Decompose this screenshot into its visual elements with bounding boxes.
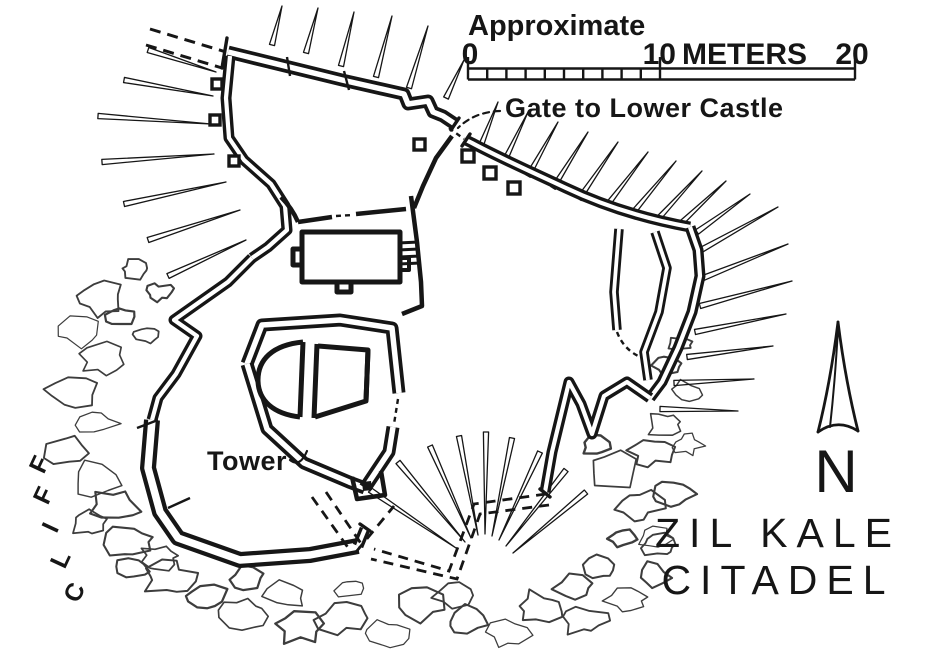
buttress-square bbox=[212, 79, 222, 89]
north-letter: N bbox=[814, 438, 857, 505]
tower-label: Tower bbox=[207, 446, 287, 476]
scale-bar: Approximate 0 10 METERS 20 bbox=[462, 10, 869, 80]
buttress-square bbox=[210, 115, 220, 125]
map-title: ZIL KALE CITADEL bbox=[655, 510, 901, 603]
scale-label-20: 20 bbox=[835, 38, 868, 71]
upper-courtyard-walls bbox=[281, 136, 452, 314]
slope-hachures bbox=[98, 6, 792, 553]
plan-drawing: Approximate 0 10 METERS 20 Gate to Lower… bbox=[0, 0, 925, 650]
buttress-square bbox=[229, 156, 239, 166]
dashed-wall-gap bbox=[394, 399, 398, 424]
gate-label: Gate to Lower Castle bbox=[505, 93, 784, 123]
scale-unit-label: METERS bbox=[682, 38, 807, 71]
inner-wall bbox=[298, 217, 332, 222]
wall-tie bbox=[168, 498, 190, 508]
turret-square bbox=[414, 139, 425, 150]
dashed-wall-gap bbox=[336, 215, 353, 216]
north-indicator: N bbox=[814, 322, 858, 505]
scale-heading: Approximate bbox=[468, 10, 645, 42]
turret-square bbox=[462, 150, 474, 162]
map-title-line1: ZIL KALE bbox=[655, 510, 901, 556]
citadel-site-plan: Approximate 0 10 METERS 20 Gate to Lower… bbox=[0, 0, 925, 650]
cliff-letter: L bbox=[45, 547, 77, 573]
inner-wall bbox=[356, 209, 406, 214]
central-building bbox=[293, 232, 409, 292]
tower-gate-notch bbox=[362, 481, 372, 491]
cliff-label: C L I F F bbox=[24, 452, 91, 607]
cliff-letter: F bbox=[24, 452, 56, 478]
tower-room bbox=[315, 346, 368, 417]
tower-room-divider bbox=[366, 350, 368, 401]
north-arrow-icon bbox=[818, 322, 858, 432]
map-title-line2: CITADEL bbox=[661, 557, 894, 603]
turret-square bbox=[508, 182, 520, 194]
cliff-letter: F bbox=[28, 483, 60, 509]
turret-square bbox=[484, 167, 496, 179]
cliff-letter: I bbox=[37, 519, 65, 537]
scale-label-0: 0 bbox=[462, 38, 479, 71]
dashed-wall-continuation bbox=[146, 29, 226, 68]
cliff-letter: C bbox=[58, 579, 91, 607]
dashed-wall-gap bbox=[617, 332, 638, 356]
